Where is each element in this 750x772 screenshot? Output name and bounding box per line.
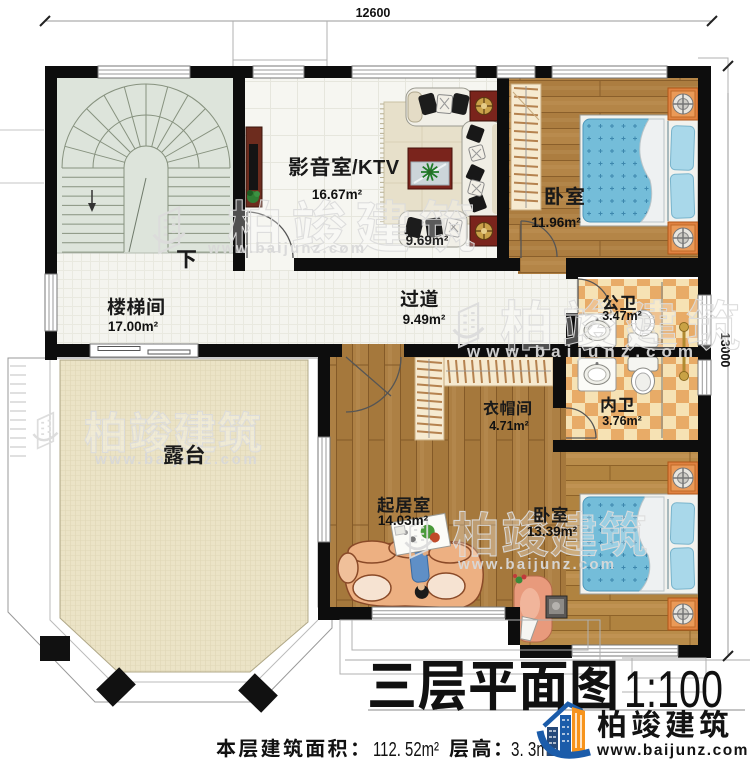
svg-text:www.baijunz.com: www.baijunz.com xyxy=(596,742,749,759)
svg-text:3.47m²: 3.47m² xyxy=(602,309,642,323)
svg-text:17.00m²: 17.00m² xyxy=(108,319,159,334)
svg-text:3.76m²: 3.76m² xyxy=(602,414,642,428)
svg-text:14.03m²: 14.03m² xyxy=(378,513,429,528)
svg-text:12600: 12600 xyxy=(356,6,391,20)
svg-text:9.69m²: 9.69m² xyxy=(406,233,449,248)
svg-text:4.71m²: 4.71m² xyxy=(489,419,529,433)
svg-text:1:100: 1:100 xyxy=(624,661,723,719)
svg-text:11.96m²: 11.96m² xyxy=(531,215,581,230)
svg-text:www.baijunz.com: www.baijunz.com xyxy=(457,556,616,573)
svg-text:16.67m²: 16.67m² xyxy=(312,187,363,202)
svg-text:9.49m²: 9.49m² xyxy=(403,312,446,327)
svg-text:www.baijunz.com: www.baijunz.com xyxy=(207,240,366,257)
svg-text:www.baijunz.com: www.baijunz.com xyxy=(466,342,699,361)
svg-text:13.39m²: 13.39m² xyxy=(527,524,578,539)
svg-text:112. 52m²: 112. 52m² xyxy=(373,739,439,761)
svg-text:/KTV: /KTV xyxy=(352,157,400,179)
